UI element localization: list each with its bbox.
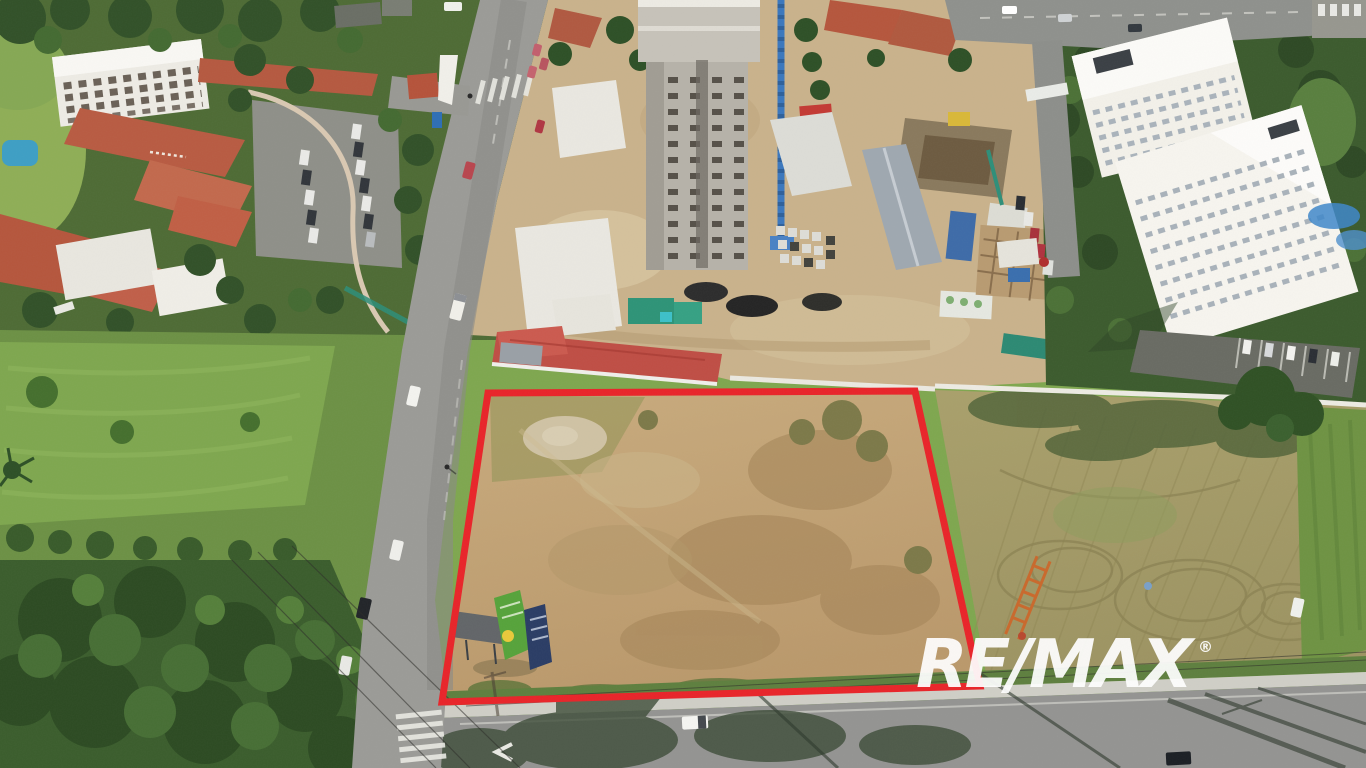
aerial-photo: RE/MAX ® (0, 0, 1366, 768)
aerial-photo-canvas: RE/MAX ® (0, 0, 1366, 768)
photo-grain-overlay (0, 0, 1366, 768)
